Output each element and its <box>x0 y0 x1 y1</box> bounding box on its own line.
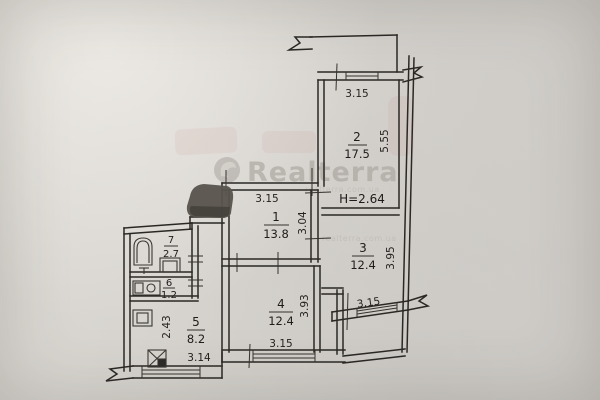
room-2-number: 2 <box>353 130 361 144</box>
bathroom-block: 7 2.7 6 1.2 <box>124 217 224 371</box>
wc-sink-icon <box>133 281 160 295</box>
room-1-number: 1 <box>272 210 280 224</box>
washbasin-icon <box>160 258 180 272</box>
dim-room4-depth: 3.93 <box>299 294 311 317</box>
kitchen-window-icon <box>142 366 200 378</box>
room-6-number: 6 <box>166 278 172 289</box>
balcony-right: 3.15 <box>332 293 428 363</box>
room-1-area: 13.8 <box>263 227 289 241</box>
dim-kitchen-depth: 2.43 <box>161 315 173 338</box>
floor-plan-photo: Realterra realterra.com.ua realterra.com… <box>0 0 600 400</box>
dim-top-balcony: 3.15 <box>345 88 368 100</box>
room2-window-icon <box>346 72 378 80</box>
room-2-area: 17.5 <box>344 147 370 161</box>
stove-icon <box>148 350 166 367</box>
balcony-top-arrow-icon <box>403 67 422 82</box>
room-4-number: 4 <box>277 297 285 311</box>
bathtub-icon <box>134 238 152 274</box>
room-3-number: 3 <box>359 241 367 255</box>
balcony-top <box>289 35 422 90</box>
dim-room1-width: 3.15 <box>255 193 278 205</box>
kitchen-sink-icon <box>133 310 152 326</box>
dim-room4-width: 3.15 <box>269 338 292 350</box>
dim-kitchen-width: 3.14 <box>187 352 211 364</box>
wall-height-note: H=2.64 <box>322 192 399 215</box>
room-3-area: 12.4 <box>350 258 376 272</box>
dim-room3-depth: 3.95 <box>385 246 397 269</box>
room-4-area: 12.4 <box>268 314 294 328</box>
room-7-number: 7 <box>168 235 174 246</box>
dim-room1-depth: 3.04 <box>297 211 309 235</box>
balcony-right-arrow-icon <box>408 295 428 310</box>
bottom-wall-break-icon <box>106 366 133 381</box>
room-4: 4 12.4 3.93 3.15 <box>222 183 345 368</box>
room-7-area: 2.7 <box>163 249 179 260</box>
room-5-area: 8.2 <box>187 332 205 346</box>
dim-room2-depth: 5.55 <box>379 129 391 152</box>
room-5-number: 5 <box>192 315 200 329</box>
floor-plan-drawing: Realterra realterra.com.ua realterra.com… <box>0 0 600 400</box>
room4-window-icon <box>253 350 315 362</box>
bottom-right-step-wall <box>343 349 405 363</box>
redaction-blob <box>187 184 233 218</box>
balcony-top-break-icon <box>289 37 312 50</box>
ceiling-height-label: H=2.64 <box>339 192 385 206</box>
